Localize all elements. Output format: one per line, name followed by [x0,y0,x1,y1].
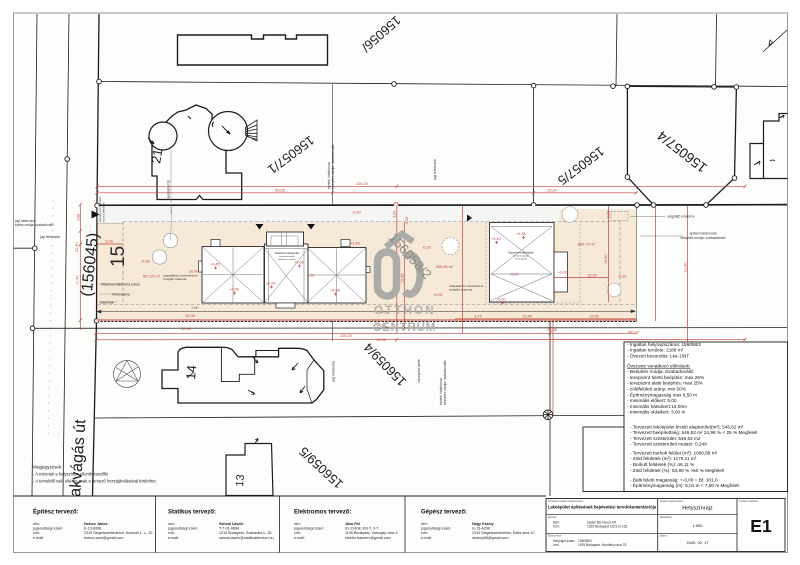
svg-text:jogi telekhatár: jogi telekhatár [332,360,336,383]
svg-text:e-mail:: e-mail: [168,536,179,540]
svg-text:1165 Budapest 1203 út 152.: 1165 Budapest 1203 út 152. [587,525,628,529]
svg-text:Cím:: Cím: [553,525,560,529]
svg-text:elektro.bauzerv@gmail.com: elektro.bauzerv@gmail.com [345,536,391,540]
svg-text:1:500: 1:500 [692,523,703,528]
svg-text:Elektromos tervező:: Elektromos tervező: [294,510,351,516]
svg-text:21,90: 21,90 [683,262,687,272]
svg-text:-0,08: -0,08 [141,260,150,264]
svg-text:305,98 m²: 305,98 m² [436,265,454,269]
svg-text:Építés helye:: Építés helye: [548,535,562,538]
svg-text:e-mail:: e-mail: [33,536,44,540]
svg-text:Megjegyzések:: Megjegyzések: [33,465,62,470]
svg-text:30,24: 30,24 [547,189,557,193]
svg-text:- terepszint alatti beépítés:: - terepszint alatti beépítés: max 25% [627,381,703,386]
svg-text:12,46: 12,46 [522,314,532,318]
svg-text:Gázórák: Gázórák [100,300,114,304]
svg-text:+4,38: +4,38 [516,232,526,236]
svg-text:- terepszint feletti beépítés:: - terepszint feletti beépítés: max 25% [627,375,704,380]
svg-text:útburkolat széle: útburkolat széle [417,359,421,383]
svg-text:- Tervezett szintterület: 546,: - Tervezett szintterület: 546,62 m2 [630,436,701,441]
svg-text:13: 13 [234,474,247,487]
svg-text:+4,08: +4,08 [229,288,239,292]
svg-text:- Tervezett burkolt felület (: - Tervezett burkolt felület (m²): 1008,8… [630,450,718,455]
svg-text:69,06: 69,06 [275,189,285,193]
svg-text:E1: E1 [750,516,772,536]
svg-text:Villamos hálózatra kötés: Villamos hálózatra kötés [101,282,140,286]
svg-text:±0,00: ±0,00 [189,270,198,274]
svg-text:35,18: 35,18 [181,327,191,331]
svg-text:tároló épület: tároló épület [515,258,527,261]
svg-text:É-13-0008: É-13-0008 [84,526,101,531]
svg-text:15,96: 15,96 [401,273,405,283]
svg-text:jogosultsági szám:: jogosultsági szám: [293,527,324,531]
svg-text:+4,40: +4,40 [491,237,501,241]
svg-text:Holecz János: Holecz János [84,522,108,526]
svg-text:vízgyűjtő csatorna: vízgyűjtő csatorna [667,215,694,219]
svg-text:Sánvai László: Sánvai László [219,522,244,526]
svg-text:sanvai.laszlo@statikustervezo.: sanvai.laszlo@statikustervezo.hu [219,536,274,540]
svg-text:21,90: 21,90 [75,242,79,252]
svg-text:- A méretek a helyszínen ellen: - A méretek a helyszínen ellenőrizendők! [33,472,108,477]
svg-text:- Ingatlan helyrajziszáma: 156: - Ingatlan helyrajziszáma: 156058/2 [627,342,701,347]
svg-text:-5,00: -5,00 [497,298,506,302]
svg-text:beépítés módja: szabadonálló: beépítés módja: szabadonálló [443,360,447,405]
svg-text:- Tervezett lakóépület bruttó: - Tervezett lakóépület bruttó alapterüle… [630,424,744,429]
svg-text:jogi telekhatár: jogi telekhatár [433,158,437,181]
svg-text:- Beépítés módja: Szabadonálló: - Beépítés módja: Szabadonálló [627,369,694,374]
svg-text:- minimális előkert: 5,00: - minimális előkert: 5,00 [627,398,677,403]
svg-text:- Övezeti besorolás: Lke-1/NT: - Övezeti besorolás: Lke-1/NT [627,352,689,358]
svg-text:-0,33: -0,33 [422,246,431,250]
svg-text:+1,48: +1,48 [350,242,360,246]
svg-text:tervezett épület: tervezett épület [280,255,295,258]
svg-text:építési határvonal: építési határvonal [690,232,717,236]
svg-text:+0,45: +0,45 [210,263,220,267]
svg-text:cím:: cím: [33,531,40,535]
svg-text:4,26: 4,26 [405,217,409,224]
svg-text:- A tervektől való eltérés csa: - A tervektől való eltérés csak a tervez… [33,479,157,484]
svg-text:Helyszínrajz: Helyszínrajz [682,506,713,512]
svg-text:jogosultsági szám:: jogosultsági szám: [32,527,63,531]
svg-text:Statikus tervező:: Statikus tervező: [168,510,216,516]
svg-text:- zöldfelületi arány: min 50%: - zöldfelületi arány: min 50% [627,387,686,392]
svg-text:Tervdokumentáció megnevezése:: Tervdokumentáció megnevezése: [548,500,584,503]
svg-text:név:: név: [33,522,40,526]
svg-text:15,90: 15,90 [604,254,608,264]
svg-text:jogosultsági szám:: jogosultsági szám: [420,527,451,531]
svg-text:+4,06: +4,06 [294,261,304,265]
svg-text:- Burkolt felületek (%): 46,11: - Burkolt felületek (%): 46,11 % [630,462,694,467]
svg-text:beépítés módja: szabadonálló: beépítés módja: szabadonálló [680,236,725,240]
svg-text:5,08: 5,08 [105,240,112,244]
svg-text:- Tervezett beépítettség: 546,: - Tervezett beépítettség: 546,62 m² 24,9… [630,430,757,435]
svg-text:21: 21 [148,148,165,165]
svg-text:Gépész tervező:: Gépész tervező: [421,510,467,516]
svg-text:név:: név: [421,522,428,526]
svg-text:szolgáló csatorna: szolgáló csatorna [449,288,473,292]
svg-text:-0,30: -0,30 [352,211,361,215]
svg-text:33,08: 33,08 [185,314,195,318]
svg-text:Építész tervező:: Építész tervező: [33,508,79,516]
svg-text:cím:: cím: [553,543,559,547]
svg-text:3,00: 3,00 [393,211,397,218]
svg-text:-5,00: -5,00 [306,274,315,278]
svg-text:180,20: 180,20 [627,331,639,335]
svg-text:607,25 m²: 607,25 m² [143,275,161,279]
svg-text:100,20: 100,20 [340,334,352,338]
svg-text:- minimális hátsókert:15,00m: - minimális hátsókert:15,00m [627,404,687,409]
svg-text:Övezetre vonatkozó előírások:: Övezetre vonatkozó előírások: [627,362,690,368]
svg-text:név:: név: [294,522,301,526]
svg-text:Tervlap megnevezése:: Tervlap megnevezése: [660,500,684,503]
svg-text:1 sáv: 1 sáv [191,305,199,309]
svg-text:- Balti feletti magasság: +-0,: - Balti feletti magasság: +-0,00 = Bf. 1… [630,477,718,482]
svg-text:-0,31: -0,31 [618,275,627,279]
svg-text:nkaroly55@gmail.com: nkaroly55@gmail.com [472,536,509,540]
svg-text:Dátum:: Dátum: [660,535,668,538]
svg-text:14: 14 [183,365,199,381]
svg-text:2310 Szigetszentmiklós, Délia: 2310 Szigetszentmiklós, Délia utca 11. [472,531,535,535]
svg-text:885,75 m²: 885,75 m² [578,243,596,247]
svg-text:kandeláber ltp: kandeláber ltp [167,180,171,200]
svg-text:+4,08: +4,08 [330,289,340,293]
svg-text:Lakóépület építésének bejelent: Lakóépület építésének bejelentési tervdo… [548,505,657,510]
svg-text:Építtető:: Építtető: [548,516,557,519]
svg-text:tervezett garázs: tervezett garázs [513,255,529,258]
svg-text:e-mail:: e-mail: [421,536,432,540]
svg-text:4,58: 4,58 [76,214,80,221]
svg-text:holecz.arch@gmail.com: holecz.arch@gmail.com [84,536,123,540]
svg-text:jogosultsági szám:: jogosultsági szám: [167,527,198,531]
svg-text:- minimális oldalkert: 3,00 m: - minimális oldalkert: 3,00 m [627,410,685,415]
svg-text:G-13-A296: G-13-A296 [472,527,490,531]
svg-text:15,00: 15,00 [587,273,597,277]
svg-text:cím:: cím: [421,531,428,535]
svg-text:- Zöld felületek (m²): 1179,1: - Zöld felületek (m²): 1179,11 m² [630,456,697,461]
svg-text:Kétszintes lakóépület: Kétszintes lakóépület [275,251,300,255]
svg-text:+0,00: +0,00 [433,293,443,297]
svg-text:cím:: cím: [294,531,301,535]
svg-text:Méretarány:: Méretarány: [660,516,673,519]
svg-text:név:: név: [168,522,175,526]
svg-text:szolgáló csatorna: szolgáló csatorna [163,277,187,281]
svg-text:2020. 02. 17: 2020. 02. 17 [686,540,709,545]
svg-text:e-mail:: e-mail: [294,536,305,540]
svg-text:- Tervezett szintterületi muta: - Tervezett szintterületi mutató: 0,249 [630,442,707,447]
svg-text:Jása Pál: Jása Pál [345,522,360,526]
svg-text:Egyszintes lakóépület: Egyszintes lakóépület [508,251,533,255]
svg-text:építés módja: szabadonálló: építés módja: szabadonálló [15,223,54,227]
svg-text:- Építménymagasság max 6,50 m: - Építménymagasság max 6,50 m [627,391,697,397]
svg-text:35,06: 35,06 [547,328,557,332]
svg-text:- Építménymagasság (m): 5,01: - Építménymagasság (m): 5,01 m < 7,50 m … [630,482,740,488]
svg-text:±0,00: ±0,00 [266,282,275,286]
svg-text:15: 15 [108,246,129,267]
svg-text:ivóvíz bekötés: ivóvíz bekötés [102,202,106,222]
svg-text:3,00: 3,00 [607,211,611,218]
svg-text:- Zöld felületek (%): 53,89 %: - Zöld felületek (%): 53,89 % >50 % Megf… [630,468,724,473]
svg-text:cím:: cím: [168,531,175,535]
svg-text:CENTRUM: CENTRUM [373,322,436,334]
svg-text:1195 Budapest, Hunfalvy utca 7: 1195 Budapest, Hunfalvy utca 75. [578,543,627,547]
svg-text:2,75: 2,75 [474,314,481,318]
svg-text:01-12408, EN-T, V-T: 01-12408, EN-T, V-T [345,527,379,531]
svg-text:15,06: 15,06 [589,315,599,319]
svg-text:OTTHON: OTTHON [374,305,436,317]
svg-text:T-7-01-0694: T-7-01-0694 [219,527,239,531]
svg-text:Nagy Károly: Nagy Károly [472,522,494,526]
svg-text:2319 Szigetszentmárton, Kossut: 2319 Szigetszentmárton, Kossuth L. u. 32… [84,531,154,535]
svg-text:Tervlap sorszáma:: Tervlap sorszáma: [739,500,759,503]
svg-text:jogi telekhatár: jogi telekhatár [39,235,61,239]
svg-text:+5,00: +5,00 [509,273,519,277]
svg-text:34,98: 34,98 [376,338,386,342]
svg-text:1215 Budapest, Szabadka u. 35.: 1215 Budapest, Szabadka u. 35. [219,531,273,535]
svg-text:100,20: 100,20 [356,182,368,186]
svg-text:1195 Budapest, Varrógép utca 1: 1195 Budapest, Varrógép utca 1. [345,531,399,535]
svg-text:beépítés módja: szabadonálló: beépítés módja: szabadonálló [331,144,335,189]
svg-text:+0,00: +0,00 [558,271,568,275]
svg-text:Vízóraakna: Vízóraakna [112,292,130,296]
svg-text:- Ingatlan területe: 2188 m²: - Ingatlan területe: 2188 m² [627,348,684,353]
